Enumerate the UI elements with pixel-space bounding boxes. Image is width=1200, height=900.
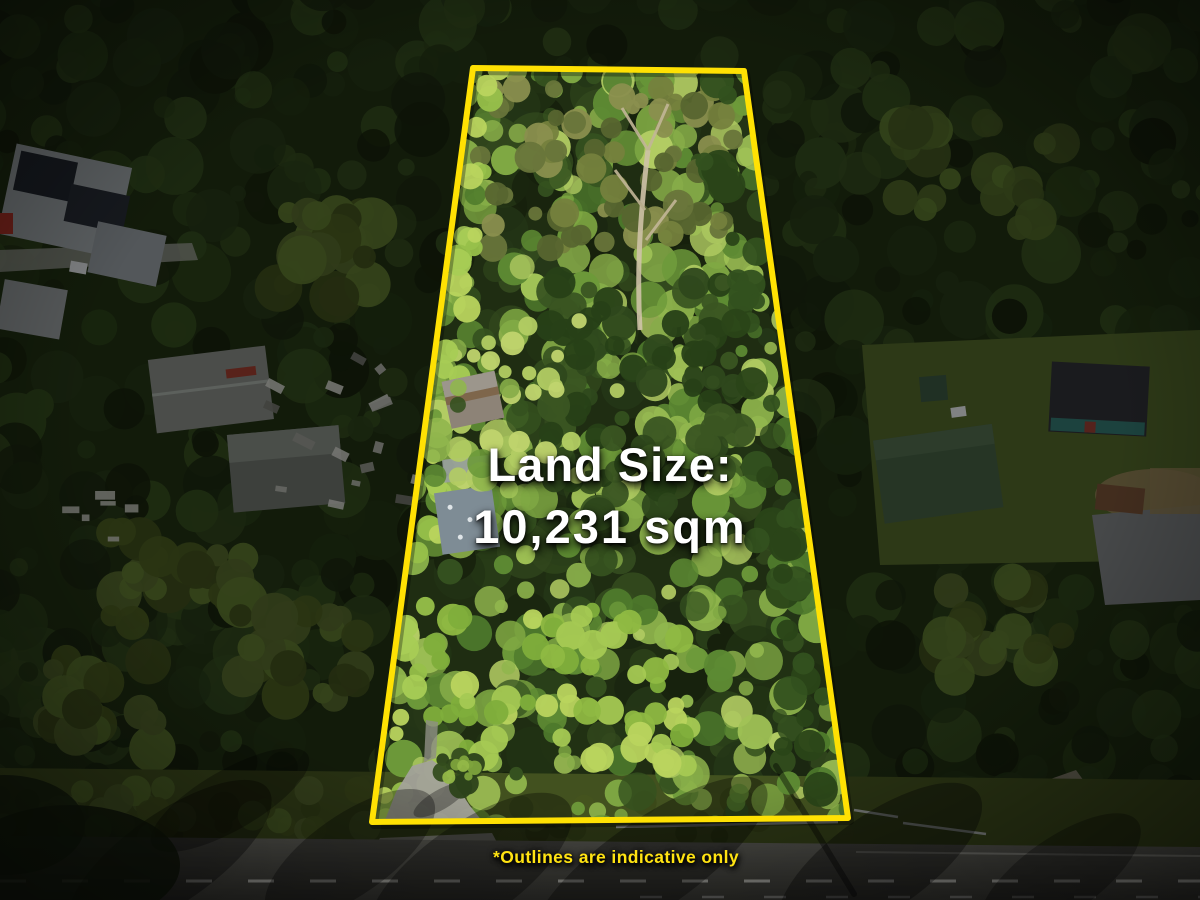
aerial-photo: Land Size: 10,231 sqm *Outlines are indi… — [0, 0, 1200, 900]
vignette-overlay — [0, 0, 1200, 900]
aerial-scene — [0, 0, 1200, 900]
